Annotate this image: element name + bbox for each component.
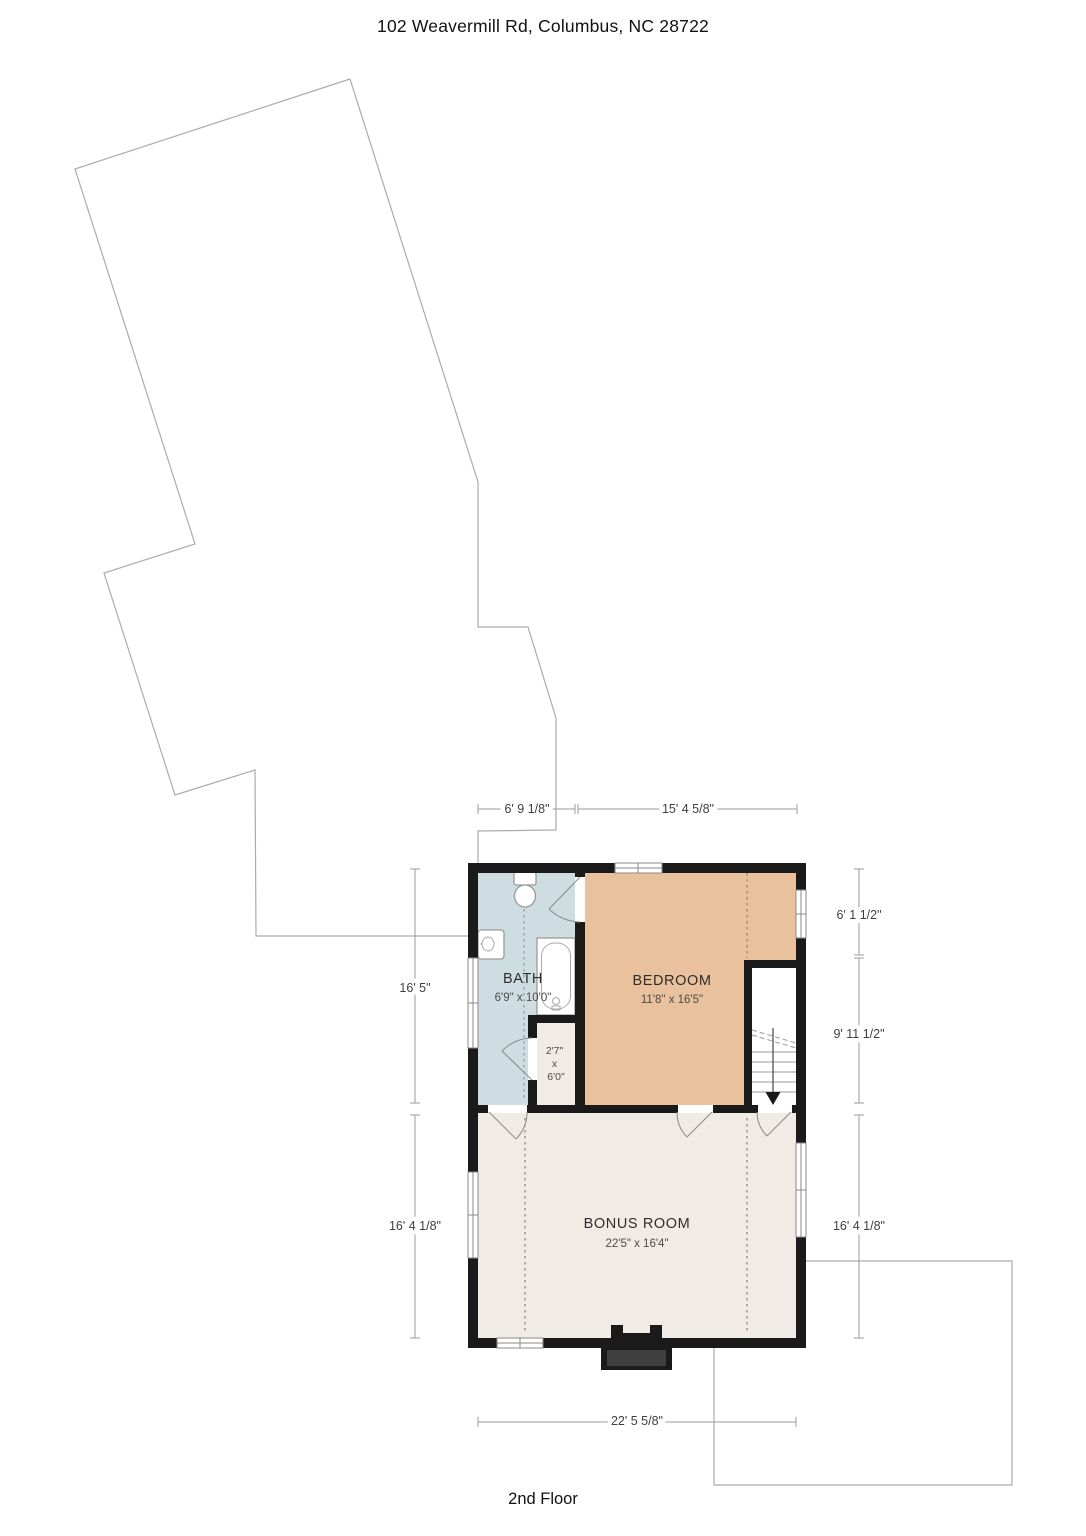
bedroom-label: BEDROOM [632,973,711,989]
dim-right-lower: 16' 4 1/8" [833,1219,885,1233]
chimney-inner [607,1350,666,1366]
bonus-bottom-window [497,1338,543,1348]
bonus-left-window [468,1172,478,1258]
dim-right-middle: 9' 11 1/2" [833,1027,884,1041]
bath-size: 6'9" x 10'0" [495,992,552,1004]
dim-top-left: 6' 9 1/8" [504,802,549,816]
bedroom-top-window [615,863,662,873]
bonus-right-window [796,1143,806,1237]
dim-right-upper: 6' 1 1/2" [836,908,881,922]
floorplan-drawing: 6' 9 1/8" 15' 4 5/8" 16' 5" 16' 4 1/8" 6… [0,0,1086,1536]
bedroom-right-window [796,890,806,938]
bonus-size: 22'5" x 16'4" [605,1238,668,1250]
dim-bottom: 22' 5 5/8" [611,1414,663,1428]
bath-label: BATH [503,971,543,987]
floorplan-page: 102 Weavermill Rd, Columbus, NC 28722 [0,0,1086,1536]
bedroom-size: 11'8" x 16'5" [641,994,703,1006]
toilet-icon [514,872,536,907]
bonus-label: BONUS ROOM [584,1216,691,1232]
dim-left-lower: 16' 4 1/8" [389,1219,441,1233]
floor-label: 2nd Floor [0,1490,1086,1509]
dim-top-right: 15' 4 5/8" [662,802,714,816]
bath-left-window [468,958,478,1048]
dim-left-upper: 16' 5" [399,981,430,995]
stairwell-floor [752,968,796,1105]
sink-icon [478,930,504,959]
